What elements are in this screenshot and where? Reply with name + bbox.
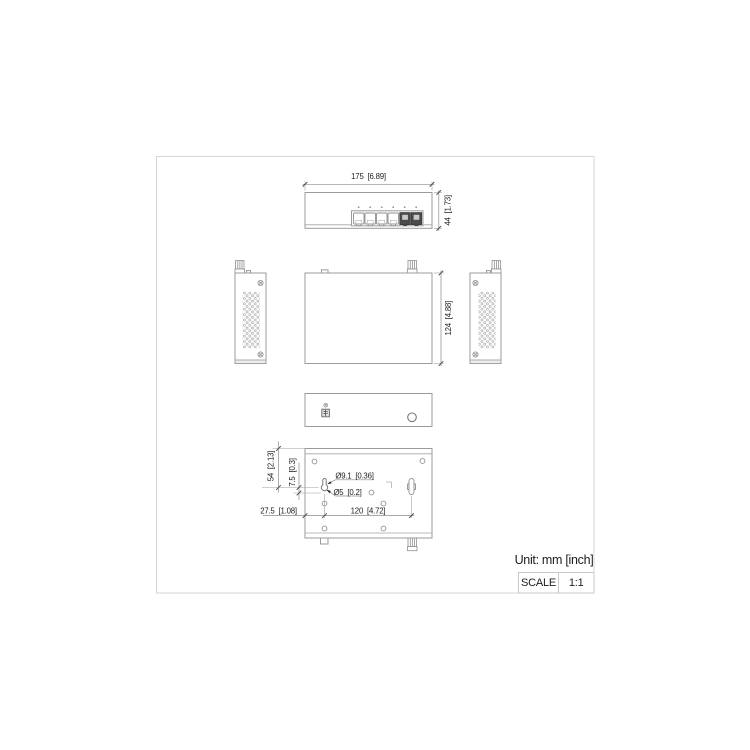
hole: [322, 526, 327, 531]
base-strip: [235, 360, 266, 364]
rj45-port-3: [377, 213, 388, 226]
power-inlet-hole: [408, 413, 417, 422]
power-terminal-block: [235, 261, 245, 274]
vent-grille: [243, 292, 260, 349]
unit-note: Unit: mm [inch]: [515, 553, 594, 567]
ground-screw-icon: [324, 403, 328, 407]
case-screw-top: [473, 280, 478, 285]
case-screw-top: [258, 280, 263, 285]
dim-spacing-label: 120 [4.72]: [351, 507, 386, 516]
scale-table: SCALE 1:1: [519, 573, 595, 594]
hole: [312, 459, 317, 464]
dim-offset-v-label: 54 [2.13]: [266, 451, 275, 482]
scale-value: 1:1: [569, 577, 584, 589]
vent-grille: [479, 292, 496, 349]
rear-view: [305, 394, 432, 427]
engineering-drawing: 175 [6.89] 44 [1.73] 124 [4.88]: [0, 0, 750, 750]
dim-hole-small-label: Ø5 [0.2]: [333, 488, 361, 497]
scale-label: SCALE: [521, 577, 556, 589]
dim-front-width-label: 175 [6.89]: [351, 172, 386, 181]
left-side-view: [235, 261, 266, 364]
dim-front-height-label: 44 [1.73]: [443, 195, 452, 226]
cross-mount-slot: [408, 479, 416, 495]
right-side-view: [470, 261, 501, 364]
rj45-port-2: [365, 213, 376, 226]
dim-hole-large-label: Ø9.1 [0.36]: [335, 472, 373, 481]
dim-offset-h-label: 27.5 [1.08]: [260, 507, 297, 516]
rj45-port-4: [388, 213, 399, 226]
hole: [381, 501, 386, 506]
hole: [369, 490, 374, 495]
base-strip: [470, 360, 501, 364]
uplink-port-2: [411, 213, 422, 227]
case-screw-bottom: [473, 352, 478, 357]
dim-offset-v2-label: 7.5 [0.3]: [288, 458, 297, 486]
hole: [381, 526, 386, 531]
case-screw-bottom: [258, 352, 263, 357]
top-view: 124 [4.88]: [305, 261, 453, 367]
power-terminal-block: [492, 261, 502, 274]
ground-symbol-icon: [322, 409, 330, 417]
top-outline: [305, 273, 432, 364]
power-terminal-block: [408, 261, 418, 274]
uplink-port-1: [400, 213, 411, 227]
dim-top-depth-label: 124 [4.88]: [444, 301, 453, 336]
drawing-page: 175 [6.89] 44 [1.73] 124 [4.88]: [0, 0, 750, 750]
hole: [420, 459, 425, 464]
power-terminal-block: [408, 538, 418, 551]
rj45-port-1: [354, 213, 365, 226]
